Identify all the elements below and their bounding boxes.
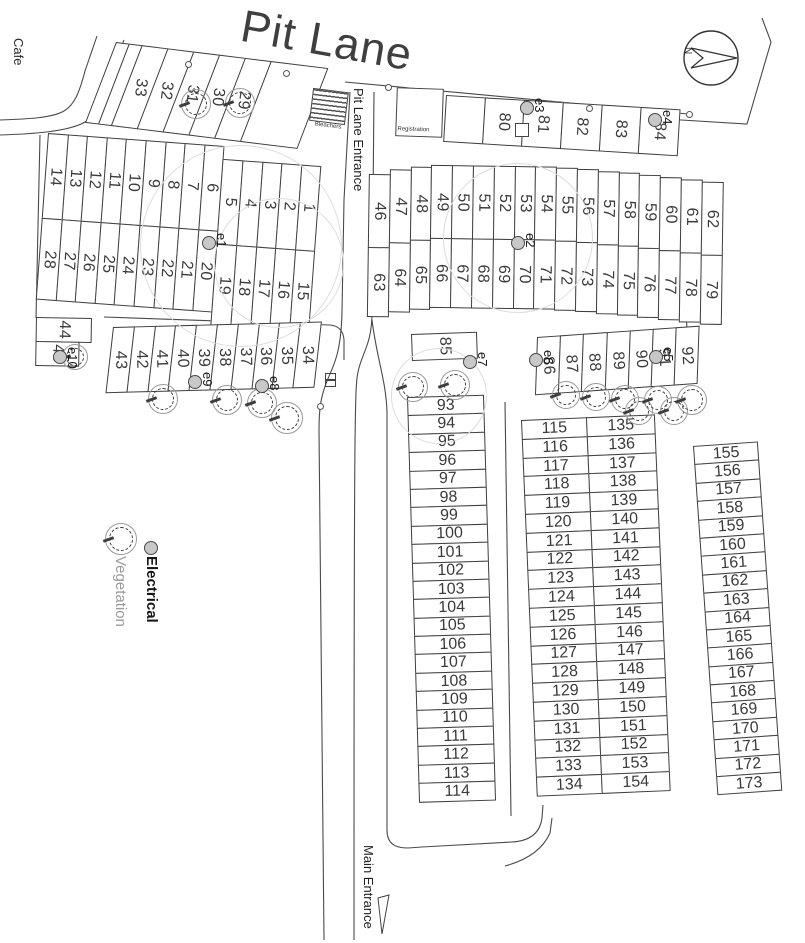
spot-cell: 134 <box>536 774 603 797</box>
spot-number: 34 <box>299 345 315 364</box>
spot-cell: 77 <box>658 250 681 320</box>
spot-number: 111 <box>443 727 468 746</box>
spot-number: 129 <box>552 682 579 701</box>
spot-number: 44 <box>56 320 72 339</box>
spot-number: 137 <box>609 454 636 473</box>
spot-number: 90 <box>632 349 649 369</box>
spot-number: 28 <box>40 249 57 269</box>
post-dot <box>385 84 392 91</box>
electrical-marker: e1 <box>202 236 216 250</box>
spot-number: 141 <box>612 529 639 548</box>
electrical-marker-label: e2 <box>524 233 537 247</box>
spot-number: 155 <box>712 444 740 464</box>
spot-cell <box>443 95 486 144</box>
spot-number: 126 <box>549 626 576 645</box>
spot-number: 82 <box>573 117 590 137</box>
spot-number: 138 <box>609 473 636 492</box>
spot-cell: 65 <box>409 240 432 310</box>
electrical-marker-label: e5 <box>662 347 675 361</box>
spot-cell: 47 <box>389 169 412 243</box>
spot-number: 104 <box>438 598 465 617</box>
spot-number: 131 <box>553 719 580 738</box>
spot-number: 170 <box>731 719 759 739</box>
spot-number: 41 <box>153 349 169 368</box>
electrical-marker: e2 <box>511 236 525 250</box>
spot-number: 123 <box>547 569 574 588</box>
spot-number: 156 <box>713 462 741 482</box>
spot-cell: 89 <box>604 330 630 390</box>
spot-cell: 60 <box>659 177 682 251</box>
spot-number: 157 <box>715 480 743 500</box>
vegetation-icon <box>148 384 178 414</box>
spot-cell: 92 <box>674 326 700 386</box>
vegetation-icon <box>677 385 707 415</box>
spot-cell: 61 <box>680 179 703 253</box>
spot-number: 11 <box>105 172 122 191</box>
spot-number: 144 <box>614 585 641 604</box>
post-dot <box>317 403 324 410</box>
legend-electrical-label: Electrical <box>144 556 159 623</box>
spot-number: 63 <box>370 273 386 292</box>
spot-number: 98 <box>439 488 457 507</box>
spot-number: 166 <box>726 645 754 665</box>
spot-number: 60 <box>662 205 678 224</box>
legend-vegetation-icon <box>105 523 137 555</box>
vegetation-icon <box>271 402 303 434</box>
spot-number: 96 <box>438 451 456 470</box>
post-dot <box>586 105 593 112</box>
electrical-marker-label: e3 <box>533 98 546 112</box>
spot-number: 107 <box>440 654 467 673</box>
electrical-marker-label: e4 <box>661 110 674 124</box>
road-east-of-col93 <box>505 402 511 816</box>
spot-number: 49 <box>434 193 450 212</box>
vegetation-icon <box>181 89 211 119</box>
spot-number: 24 <box>119 255 136 275</box>
registration-building: Registration <box>395 87 444 138</box>
spot-number: 132 <box>554 738 581 757</box>
spot-number: 159 <box>717 517 745 537</box>
spot-cell: 114 <box>418 781 496 803</box>
spot-number: 92 <box>678 346 695 366</box>
electrical-marker: e8 <box>255 379 269 393</box>
spot-number: 13 <box>66 168 83 188</box>
spot-number: 119 <box>544 494 570 513</box>
spot-number: 133 <box>555 757 582 776</box>
spot-number: 83 <box>612 119 629 139</box>
registration-label: Registration <box>397 126 429 133</box>
spot-number: 37 <box>237 347 253 366</box>
road-below-col93 <box>422 805 543 847</box>
spot-number: 88 <box>586 352 603 372</box>
electrical-marker-label: e6 <box>542 350 555 364</box>
spot-number: 74 <box>599 270 615 289</box>
spot-number: 32 <box>156 80 174 101</box>
legend-electrical-icon <box>144 541 158 555</box>
spot-number: 25 <box>99 254 116 274</box>
vegetation-icon <box>552 381 580 409</box>
spot-number: 168 <box>729 682 757 702</box>
spot-cell: 44 <box>36 317 92 343</box>
post-dot <box>283 70 290 77</box>
spot-number: 99 <box>440 507 458 526</box>
post-dot <box>185 61 192 68</box>
spot-number: 40 <box>174 349 190 368</box>
spot-number: 114 <box>444 782 470 801</box>
spot-cell: 76 <box>637 248 660 318</box>
spot-cell: 78 <box>679 252 702 322</box>
spot-cell: 82 <box>560 102 603 151</box>
spot-number: 35 <box>278 346 294 365</box>
spot-number: 148 <box>617 660 644 679</box>
spot-number: 167 <box>728 664 756 684</box>
electrical-marker-label: e9 <box>201 372 214 386</box>
spot-cell: 62 <box>701 182 724 256</box>
spot-number: 117 <box>543 457 569 476</box>
spot-cell: 154 <box>601 771 671 794</box>
spot-number: 66 <box>433 263 449 282</box>
spot-number: 163 <box>722 590 750 610</box>
spot-cell: 63 <box>367 247 390 317</box>
spot-number: 80 <box>495 112 512 132</box>
spot-number: 171 <box>733 737 761 757</box>
spot-number: 160 <box>719 535 747 555</box>
spot-number: 121 <box>545 532 572 551</box>
spot-number: 154 <box>622 773 649 792</box>
spot-number: 79 <box>703 280 719 299</box>
spot-number: 146 <box>616 623 643 642</box>
spot-cell: 48 <box>410 167 433 241</box>
spot-number: 140 <box>611 510 638 529</box>
spot-number: 127 <box>550 644 577 663</box>
compass-north-label: N <box>682 47 693 54</box>
spot-cell: 74 <box>596 244 619 314</box>
site-map: Pit Lane Cafe Pit Lane Entrance Main Ent… <box>0 0 805 943</box>
hookup-icon <box>325 373 336 380</box>
post-dot <box>686 111 693 118</box>
spot-number: 87 <box>563 354 580 374</box>
spot-number: 153 <box>621 754 648 773</box>
spot-number: 122 <box>546 550 573 569</box>
spot-number: 106 <box>439 635 466 654</box>
spot-number: 150 <box>619 698 646 717</box>
spot-number: 173 <box>735 774 763 794</box>
spot-column: 62 79 <box>700 182 724 325</box>
vegetation-icon <box>212 385 242 415</box>
spot-number: 101 <box>437 543 464 562</box>
spot-number: 58 <box>621 200 637 219</box>
spot-number: 47 <box>392 197 408 216</box>
electrical-marker: e9 <box>188 375 202 389</box>
spot-number: 43 <box>112 350 128 369</box>
spot-number: 12 <box>86 170 103 190</box>
spot-number: 97 <box>439 470 457 489</box>
spot-number: 116 <box>542 438 568 457</box>
vegetation-icon <box>440 370 470 400</box>
spot-cell: 79 <box>700 255 723 325</box>
canopy-circle <box>214 198 344 328</box>
spot-number: 124 <box>548 588 575 607</box>
spot-number: 62 <box>704 209 720 228</box>
spot-number: 81 <box>534 115 551 135</box>
spot-number: 165 <box>725 627 753 647</box>
spot-number: 147 <box>617 642 644 661</box>
spot-number: 136 <box>608 435 635 454</box>
cafe-label: Cafe <box>12 38 25 65</box>
spot-number: 64 <box>391 268 407 287</box>
spot-cell: 57 <box>597 171 620 245</box>
electrical-icon <box>144 541 158 555</box>
spot-number: 46 <box>371 202 387 221</box>
spot-number: 145 <box>615 604 642 623</box>
utility-box-icon <box>515 123 529 137</box>
electrical-marker: e5 <box>649 350 663 364</box>
spot-number: 103 <box>438 580 465 599</box>
spot-number: 118 <box>544 475 570 494</box>
main-entrance-label: Main Entrance <box>362 845 375 929</box>
spot-number: 113 <box>444 764 470 783</box>
spot-number: 59 <box>641 202 657 221</box>
spot-number: 105 <box>439 617 466 636</box>
electrical-marker: e10 <box>53 350 67 364</box>
spot-cell: 59 <box>638 175 661 249</box>
spot-number: 39 <box>195 348 211 367</box>
spot-number: 108 <box>440 672 467 691</box>
electrical-marker: e3 <box>520 101 534 115</box>
electrical-marker: e6 <box>529 353 543 367</box>
spot-number: 61 <box>683 207 699 226</box>
spot-number: 38 <box>216 347 232 366</box>
spot-number: 77 <box>661 276 677 295</box>
electrical-marker-label: e1 <box>215 233 228 247</box>
spot-number: 27 <box>60 251 77 271</box>
pit-lane-entrance-label: Pit Lane Entrance <box>352 88 365 191</box>
spot-number: 130 <box>552 701 579 720</box>
electrical-marker-label: e7 <box>476 352 489 366</box>
spot-number: 164 <box>724 609 752 629</box>
spot-cell: 58 <box>617 172 640 246</box>
spot-number: 120 <box>545 513 572 532</box>
spot-cell: 46 <box>368 174 391 248</box>
spot-number: 36 <box>257 346 273 365</box>
electrical-marker-label: e10 <box>66 347 79 369</box>
block-spots-115-154: 1151161171181191201211221231241251261271… <box>521 414 671 796</box>
spot-cell: 75 <box>616 245 639 315</box>
spot-number: 142 <box>613 548 640 567</box>
spot-number: 89 <box>609 351 626 371</box>
spot-cell: 83 <box>599 105 642 154</box>
spot-number: 76 <box>640 273 656 292</box>
spot-number: 158 <box>716 499 744 519</box>
electrical-marker-label: e8 <box>268 376 281 390</box>
spot-number: 75 <box>620 271 636 290</box>
spot-number: 78 <box>682 278 698 297</box>
electrical-marker: e4 <box>648 113 662 127</box>
spot-number: 110 <box>442 709 468 728</box>
spot-number: 115 <box>541 419 567 438</box>
spot-cell: 64 <box>388 242 411 312</box>
vegetation-icon <box>582 383 610 411</box>
spot-number: 134 <box>556 776 583 795</box>
spot-number: 57 <box>600 199 616 218</box>
legend-vegetation-label: Vegetation <box>113 556 128 627</box>
spot-number: 102 <box>437 562 464 581</box>
spot-number: 10 <box>125 172 142 192</box>
electrical-marker: e7 <box>463 355 477 369</box>
spot-number: 169 <box>730 700 758 720</box>
spot-number: 162 <box>721 572 749 592</box>
spot-number: 172 <box>734 755 762 775</box>
spot-number: 128 <box>551 663 578 682</box>
spot-number: 112 <box>443 745 469 764</box>
bleachers-icon <box>309 88 349 125</box>
compass: N <box>678 25 744 91</box>
spot-number: 100 <box>436 525 463 544</box>
vegetation-icon <box>225 88 255 118</box>
spot-number: 151 <box>620 717 647 736</box>
vegetation-icon <box>398 372 428 402</box>
block-spots-93-114: 9394959697989910010110210310410510610710… <box>407 395 496 803</box>
spot-number: 109 <box>441 690 468 709</box>
entrance-arrow-icon <box>376 894 392 936</box>
spot-number: 139 <box>610 491 637 510</box>
spot-number: 26 <box>79 252 96 272</box>
spot-number: 42 <box>133 350 149 369</box>
spot-number: 125 <box>549 607 576 626</box>
spot-number: 152 <box>620 735 647 754</box>
spot-number: 14 <box>46 167 63 187</box>
compass-icon <box>678 25 744 91</box>
spot-number: 33 <box>131 77 149 98</box>
spot-number: 161 <box>720 554 748 574</box>
spot-number: 65 <box>412 265 428 284</box>
spot-number: 143 <box>613 566 640 585</box>
spot-number: 149 <box>618 679 645 698</box>
spot-number: 48 <box>413 194 429 213</box>
